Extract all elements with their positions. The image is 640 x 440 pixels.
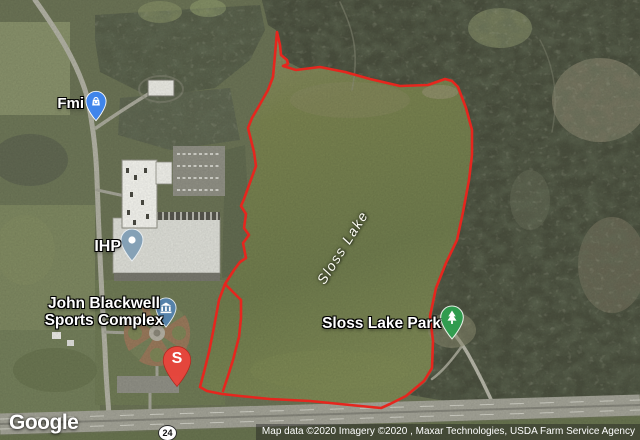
generic-poi-pin-icon (120, 228, 144, 262)
route-shield-24: 24 (158, 425, 177, 440)
satellite-imagery (0, 0, 640, 440)
marker-s-pin[interactable] (162, 344, 192, 389)
red-letter-pin-icon (162, 344, 192, 389)
sports-complex-pin[interactable] (155, 297, 177, 328)
tree-pin-icon (439, 305, 465, 340)
map-attribution: Map data ©2020 Imagery ©2020 , Maxar Tec… (256, 424, 640, 440)
park-pin[interactable] (439, 305, 465, 340)
satellite-map-canvas[interactable]: S Fmi IHP John Blackwell Sports Complex … (0, 0, 640, 440)
civic-building-pin-icon (155, 297, 177, 328)
shopping-bag-pin-icon (85, 90, 107, 122)
fmi-pin[interactable] (85, 90, 107, 122)
ihp-pin[interactable] (120, 228, 144, 262)
google-logo[interactable]: Google (9, 411, 78, 435)
